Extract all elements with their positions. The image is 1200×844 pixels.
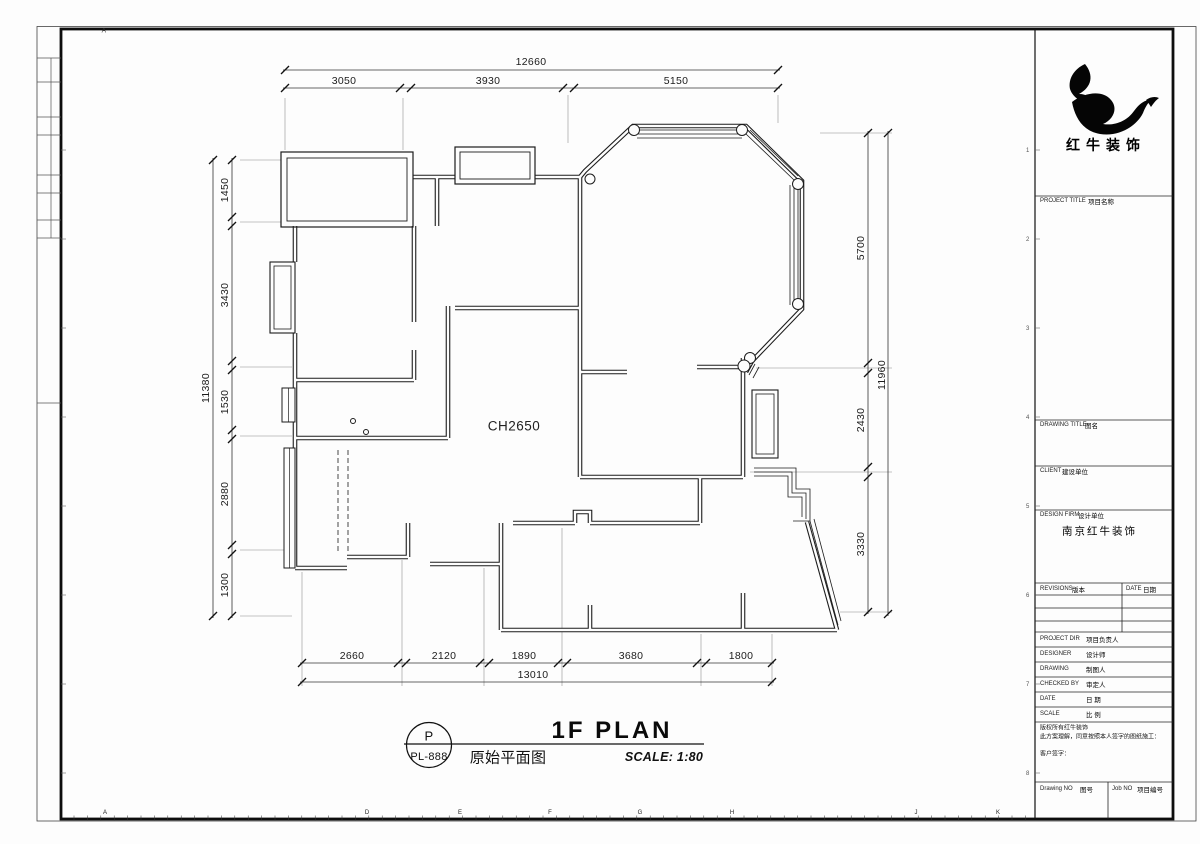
walls <box>295 126 837 630</box>
design-firm-label-en: DESIGN FIRM <box>1040 512 1079 518</box>
client-label-cn: 建设单位 <box>1062 466 1088 476</box>
dim-left-seg: 1530 <box>219 390 231 415</box>
rev-date-label-en: DATE <box>1126 586 1142 592</box>
pilasters <box>585 125 804 373</box>
checked-by-label-en: CHECKED BY <box>1040 681 1079 687</box>
scale-label-cn: 比 例 <box>1086 709 1101 719</box>
ruler-letter: F <box>548 810 552 816</box>
floor-plan-sheet: ADEFGHJK 12345678 12660 3050 3930 5150 2… <box>0 0 1200 844</box>
dim-bottom-seg: 2660 <box>340 650 365 662</box>
drawing-no-label-en: Drawing NO <box>1040 786 1073 792</box>
drawing-label-cn: 制图人 <box>1086 664 1106 674</box>
sheet-ref-letter: P <box>425 729 434 744</box>
redbull-logo-icon <box>1070 64 1159 135</box>
grid-ref-number: 4 <box>1026 415 1030 421</box>
grid-ref-number: 6 <box>1026 593 1030 599</box>
dim-right-seg: 5700 <box>855 236 867 261</box>
dim-left-seg: 3430 <box>219 283 231 308</box>
dim-bottom-overall: 13010 <box>518 669 549 681</box>
project-dir-label-en: PROJECT DIR <box>1040 636 1080 642</box>
agreement-note: 此方案理解，同意按照本人签字的图纸施工： <box>1040 732 1160 741</box>
grid-ref-number: 3 <box>1026 326 1030 332</box>
revisions-label-cn: 版本 <box>1072 584 1085 594</box>
dim-bottom-seg: 1800 <box>729 650 754 662</box>
job-no-label-en: Job NO <box>1112 786 1132 792</box>
client-label-en: CLIENT <box>1040 468 1061 474</box>
date-label-cn: 日 期 <box>1086 694 1101 704</box>
dim-bottom-seg: 2120 <box>432 650 457 662</box>
scale-label-en: SCALE <box>1040 711 1060 717</box>
grid-ref-number: 2 <box>1026 237 1030 243</box>
logo-text: 红牛装饰 <box>1066 135 1146 155</box>
dim-right-seg: 3330 <box>855 532 867 557</box>
dim-right-overall: 11960 <box>876 360 888 390</box>
project-dir-label-cn: 项目负责人 <box>1086 634 1119 644</box>
drawing-label-en: DRAWING <box>1040 666 1069 672</box>
ceiling-height-label: CH2650 <box>488 419 541 434</box>
plan-title: 1F PLAN <box>551 717 672 745</box>
project-title-label-en: PROJECT TITLE <box>1040 198 1086 204</box>
fixture-circle <box>364 430 369 435</box>
grid-refs: 12345678 <box>61 148 1040 777</box>
date-label-en: DATE <box>1040 696 1056 702</box>
grid-ref-number: 7 <box>1026 682 1030 688</box>
ruler-letter: K <box>996 810 1000 816</box>
job-no-label-cn: 项目编号 <box>1137 784 1163 794</box>
dim-right-seg: 2430 <box>855 408 867 433</box>
ruler-letters: ADEFGHJK <box>103 810 1000 816</box>
plan-scale-label: SCALE: 1:80 <box>625 750 703 764</box>
plan-title-cn: 原始平面图 <box>470 747 547 768</box>
grid-ref-number: 8 <box>1026 771 1030 777</box>
binding-strip <box>37 58 61 403</box>
designer-label-cn: 设计师 <box>1086 649 1106 659</box>
balcony-window <box>281 152 413 227</box>
grid-letter-top: A <box>102 28 107 35</box>
dim-top-seg: 3930 <box>476 75 501 87</box>
dim-bottom-seg: 1890 <box>512 650 537 662</box>
revisions-label-en: REVISIONS <box>1040 586 1073 592</box>
drawing-title-label-en: DRAWING TITLE <box>1040 422 1087 428</box>
ruler-letter: D <box>365 810 370 816</box>
windows <box>270 125 841 626</box>
ruler-letter: G <box>638 810 643 816</box>
dimension-ticks <box>209 66 892 686</box>
dimension-lines <box>213 70 888 682</box>
grid-ref-number: 5 <box>1026 504 1030 510</box>
project-title-label-cn: 项目名称 <box>1088 196 1114 206</box>
sheet-ref-number: PL-888 <box>410 751 447 763</box>
copyright-note: 版权所有红牛装饰 <box>1040 723 1088 732</box>
dim-top-seg: 3050 <box>332 75 357 87</box>
rev-date-label-cn: 日期 <box>1143 584 1156 594</box>
sheet-frame <box>37 27 1196 822</box>
dashed-lines <box>338 450 348 553</box>
dim-top-seg: 5150 <box>664 75 689 87</box>
design-firm-label-cn: 设计单位 <box>1078 510 1104 520</box>
dim-left-seg: 2880 <box>219 482 231 507</box>
checked-by-label-cn: 审定人 <box>1086 679 1106 689</box>
dim-left-overall: 11380 <box>200 373 212 403</box>
signature-note: 客户签字： <box>1040 749 1070 758</box>
drawing-no-label-cn: 图号 <box>1080 784 1093 794</box>
dim-bottom-seg: 3680 <box>619 650 644 662</box>
grid-ref-number: 1 <box>1026 148 1030 154</box>
dim-left-seg: 1300 <box>219 573 231 598</box>
drawing-title-label-cn: 图名 <box>1085 420 1098 430</box>
ruler-letter: A <box>103 810 107 816</box>
designer-label-en: DESIGNER <box>1040 651 1071 657</box>
fixture-circle <box>351 419 356 424</box>
dim-top-overall: 12660 <box>516 56 547 68</box>
dim-left-seg: 1450 <box>219 178 231 203</box>
ruler-letter: H <box>730 810 734 816</box>
ruler-letter: E <box>458 810 462 816</box>
bay-window <box>455 147 535 184</box>
design-firm-value: 南京红牛装饰 <box>1062 524 1137 539</box>
ruler-letter: J <box>915 810 918 816</box>
